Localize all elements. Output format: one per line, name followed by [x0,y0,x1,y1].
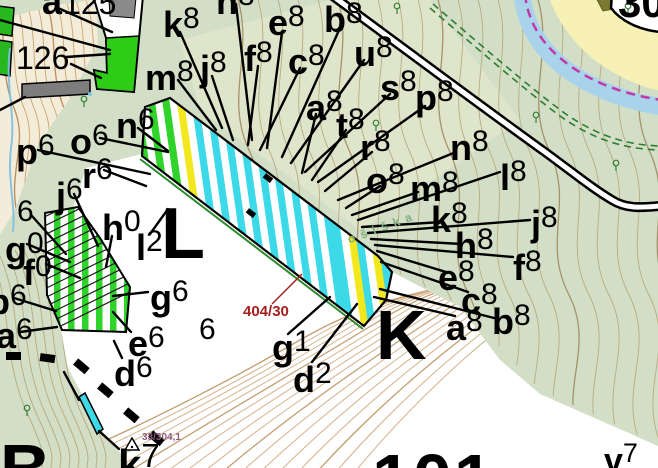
gray-bar-parcel [22,80,90,98]
map-graphics [0,0,658,468]
spring-dot [88,92,92,96]
topographic-map-canvas[interactable]: L K B 101 k7 v7 a125 126 404/30 33/304,1… [0,0,658,468]
